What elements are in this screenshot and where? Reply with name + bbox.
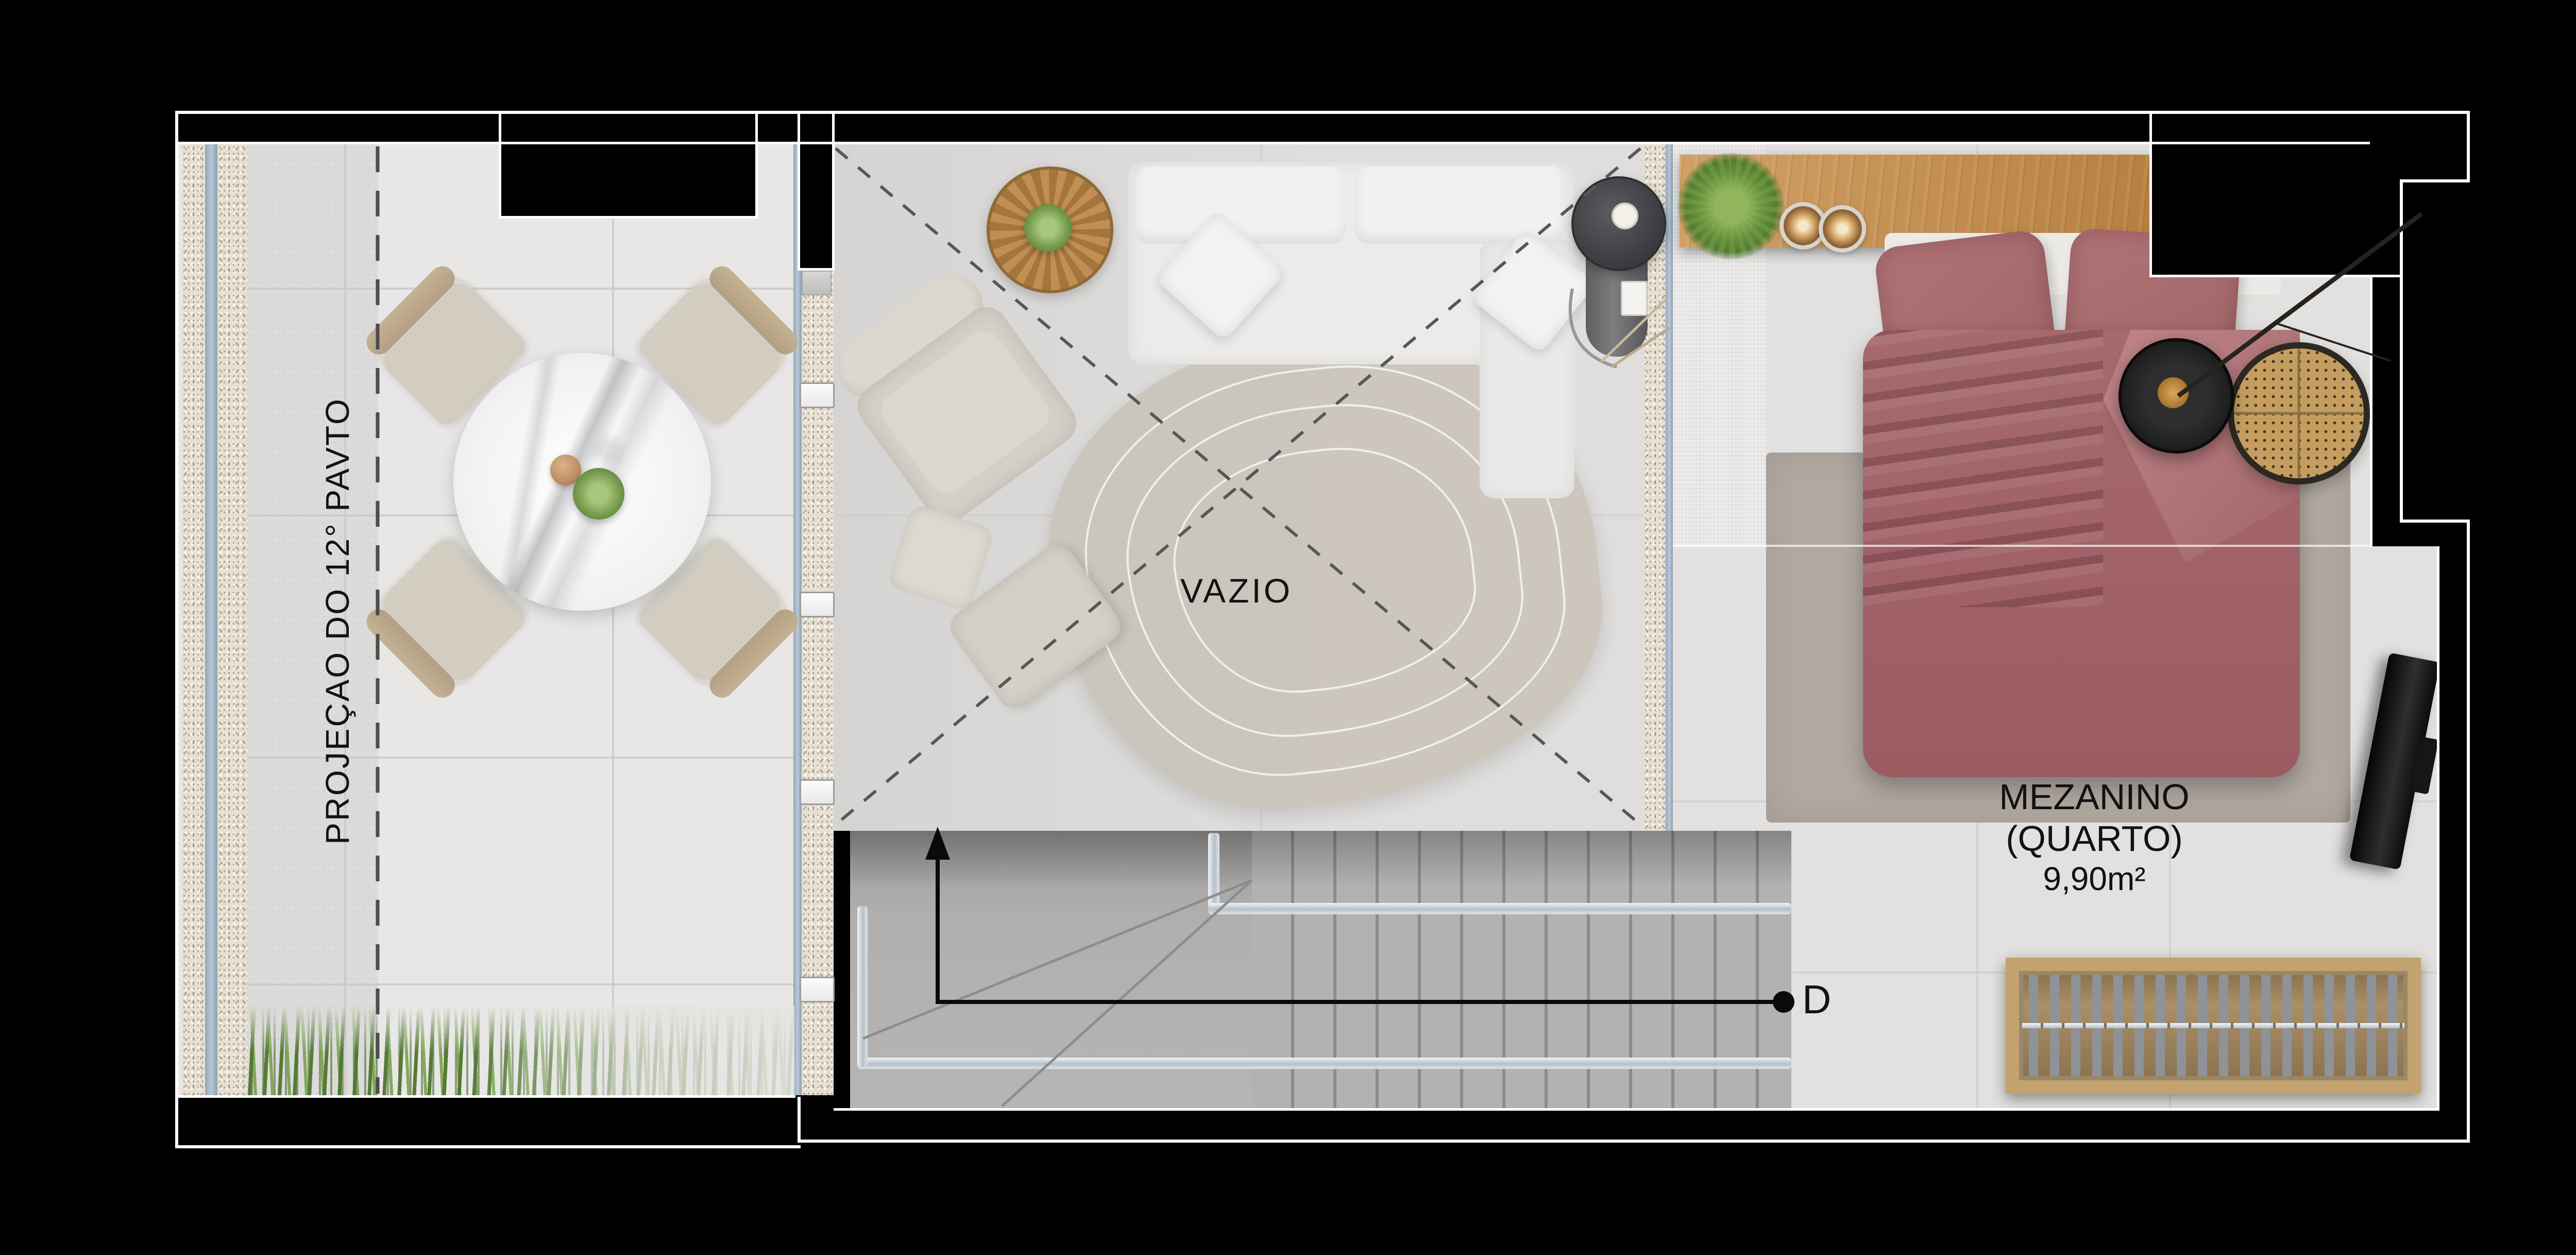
duvet-folds: [1863, 330, 2103, 607]
outer-wall-bottom-right: [798, 1140, 2470, 1143]
tile-grout: [612, 144, 614, 1095]
handrail: [857, 906, 868, 1067]
glass-line: [1666, 144, 1673, 831]
staircase: [850, 831, 1791, 1108]
void-label: VAZIO: [1133, 571, 1340, 610]
outer-wall-connector: [798, 1097, 801, 1143]
sofa: [1128, 162, 1574, 498]
inner-wall-line-bottom-left: [178, 1095, 795, 1098]
inner-wall-line-right-upper: [2370, 275, 2372, 546]
section-marker-label: D: [1802, 976, 1831, 1023]
outer-wall-left: [175, 111, 178, 1148]
floor-plan: PROJEÇAO DO 12° PAVTO VAZIO D MEZANINO (…: [0, 0, 2576, 1255]
inner-wall-step-line: [1673, 545, 2372, 547]
inner-wall-line-right-lower: [2437, 546, 2439, 1109]
table-plant: [573, 468, 624, 520]
outer-wall-notch-side: [2400, 179, 2403, 523]
coffee-table-plant: [1024, 204, 1072, 252]
closet-wall-block: [2149, 111, 2402, 277]
recessed-wall-block: [499, 111, 758, 219]
handrail: [857, 1058, 1791, 1069]
outlet-plate: [1621, 281, 1648, 316]
planter-grass-fade: [247, 1006, 794, 1095]
bedroom-subtitle: (QUARTO): [1973, 818, 2215, 860]
slatted-bench: [2006, 958, 2421, 1094]
bedroom-area: 9,90m²: [1973, 860, 2215, 898]
terrazzo-strip: [217, 144, 247, 1095]
coffee-cup: [1612, 203, 1638, 229]
outer-wall-right-upper: [2467, 111, 2470, 182]
stair-shadow: [850, 831, 1791, 888]
handrail: [1208, 833, 1219, 914]
outer-wall-right-lower: [2467, 520, 2470, 1143]
terrazzo-strip: [182, 144, 205, 1095]
bedroom-label: MEZANINO (QUARTO) 9,90m²: [1973, 776, 2215, 898]
glass-rail: [205, 144, 217, 1095]
pendant-lamp-bulb: [2158, 377, 2189, 408]
window-mullion: [800, 382, 835, 408]
pier-cap: [802, 271, 832, 295]
candle: [1819, 205, 1866, 253]
inner-wall-line-top: [178, 142, 2370, 144]
wall-pier: [798, 111, 835, 271]
rattan-chair: [2228, 342, 2370, 484]
window-mullion: [800, 779, 835, 805]
desk-plant: [1677, 153, 1785, 260]
bedroom-title: MEZANINO: [1973, 776, 2215, 818]
tile-grout: [247, 983, 793, 985]
outer-wall-notch-bottom: [2400, 520, 2470, 523]
outer-wall-top: [175, 111, 2470, 114]
window-mullion: [800, 592, 835, 617]
handrail: [1208, 903, 1791, 914]
projection-label: PROJEÇAO DO 12° PAVTO: [318, 322, 365, 920]
sofa-back-cushion: [1355, 166, 1565, 244]
outer-wall-bottom-left: [175, 1145, 801, 1148]
bench-rail: [2022, 1023, 2404, 1028]
inner-wall-line-bottom-right: [834, 1108, 2439, 1111]
window-mullion: [800, 977, 835, 1002]
outer-wall-notch-top: [2400, 179, 2470, 182]
